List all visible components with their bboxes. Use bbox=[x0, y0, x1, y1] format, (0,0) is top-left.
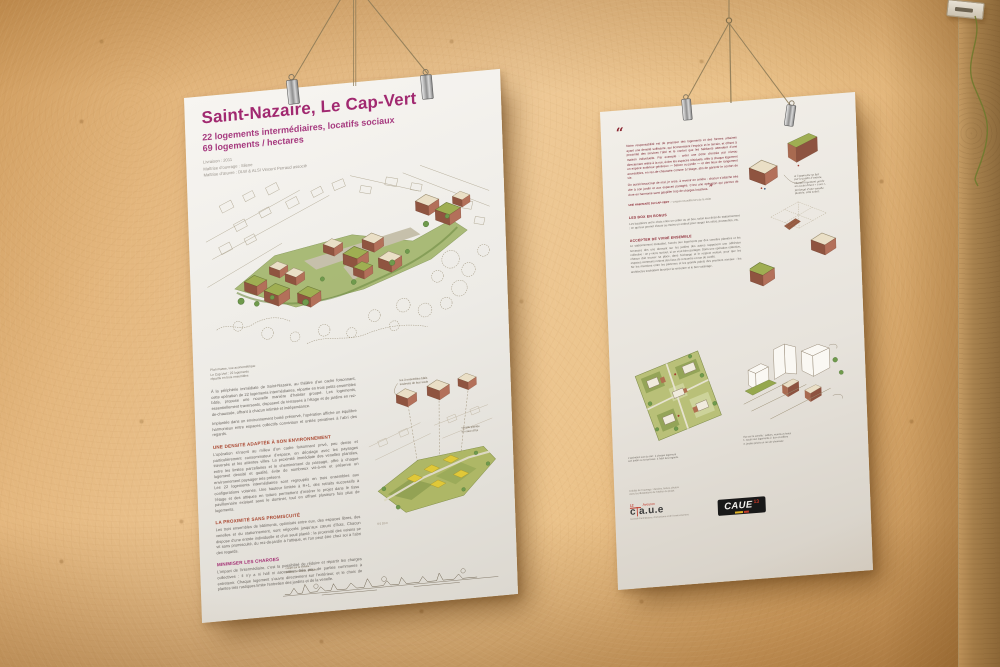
attribution-detail: — propos recueillis lors de la visite bbox=[669, 198, 711, 204]
left-poster-wires bbox=[293, 0, 427, 86]
quote-paragraph: Notre responsabilité est de proposer des… bbox=[626, 135, 738, 181]
wall-corner-pillar bbox=[958, 0, 1000, 667]
poster-left: Saint-Nazaire, Le Cap-Vert 22 logements … bbox=[184, 69, 518, 623]
junction-box bbox=[946, 0, 985, 20]
figure-caption: Vue sur la venelle : celliers, murets et… bbox=[743, 427, 853, 446]
logo-caue13-red-strip bbox=[743, 510, 748, 512]
ground-line bbox=[283, 576, 498, 598]
skyline bbox=[285, 569, 478, 595]
green-roof-block bbox=[787, 133, 818, 163]
quote-attribution: UNE HABITANTE DU CAP-VERT — propos recue… bbox=[628, 195, 739, 207]
section-body: L’opération s’inscrit au milieu d’un cad… bbox=[213, 439, 360, 514]
poster-top-row: “ Notre responsabilité est de proposer d… bbox=[615, 107, 848, 340]
plan-tilted-group bbox=[635, 351, 721, 441]
logo-caue12: 12Aveyron c|a.u.e Conseil d’architecture… bbox=[630, 499, 690, 522]
poster-right: “ Notre responsabilité est de proposer d… bbox=[600, 92, 873, 590]
poster-bottom-row: L’opération vue du ciel : à chaque logem… bbox=[624, 334, 853, 463]
acronym-rest: a.u.e bbox=[639, 504, 664, 517]
close-quote-mark: ” bbox=[709, 183, 713, 192]
site-plan-figure: L’opération vue du ciel : à chaque logem… bbox=[624, 344, 734, 464]
open-quote-mark: “ bbox=[616, 125, 625, 142]
dashed-plan bbox=[770, 200, 827, 231]
axon-site bbox=[377, 445, 497, 515]
figure-caption: L’opération vue du ciel : à chaque logem… bbox=[628, 449, 734, 464]
site-axonometric-illustration bbox=[204, 157, 495, 368]
street-axonometric bbox=[740, 334, 853, 429]
quote-column: “ Notre responsabilité est de proposer d… bbox=[615, 115, 744, 339]
logo-caue13-number: 13 bbox=[753, 498, 759, 504]
duplex-axonometric-diagrams bbox=[744, 107, 849, 325]
axon-scale: 0 5 10 m bbox=[377, 521, 388, 526]
exploded-axonometric-diagram: les 3 ensembles bâtis soulevés de leur s… bbox=[364, 363, 500, 533]
exhibition-photo: Saint-Nazaire, Le Cap-Vert 22 logements … bbox=[0, 0, 1000, 667]
aerial-site-plan bbox=[624, 344, 733, 450]
handwritten-annotation: si l’approche se fait par le jardin d’en… bbox=[794, 171, 843, 195]
attribution-name: UNE HABITANTE DU CAP-VERT bbox=[628, 201, 669, 207]
logo-caue13: CAUE13 bbox=[718, 496, 766, 516]
junction-box-slot bbox=[955, 7, 973, 13]
brick-sheds bbox=[782, 377, 822, 404]
logo-caue13-yellow-strip bbox=[735, 511, 743, 513]
stair-element bbox=[784, 218, 801, 230]
wall-corner-shadow bbox=[884, 0, 958, 667]
street-axon-figure: Vue sur la venelle : celliers, murets et… bbox=[740, 334, 853, 446]
diagram-column: si l’approche se fait par le jardin d’en… bbox=[744, 107, 849, 330]
right-poster-wires bbox=[687, 0, 790, 105]
